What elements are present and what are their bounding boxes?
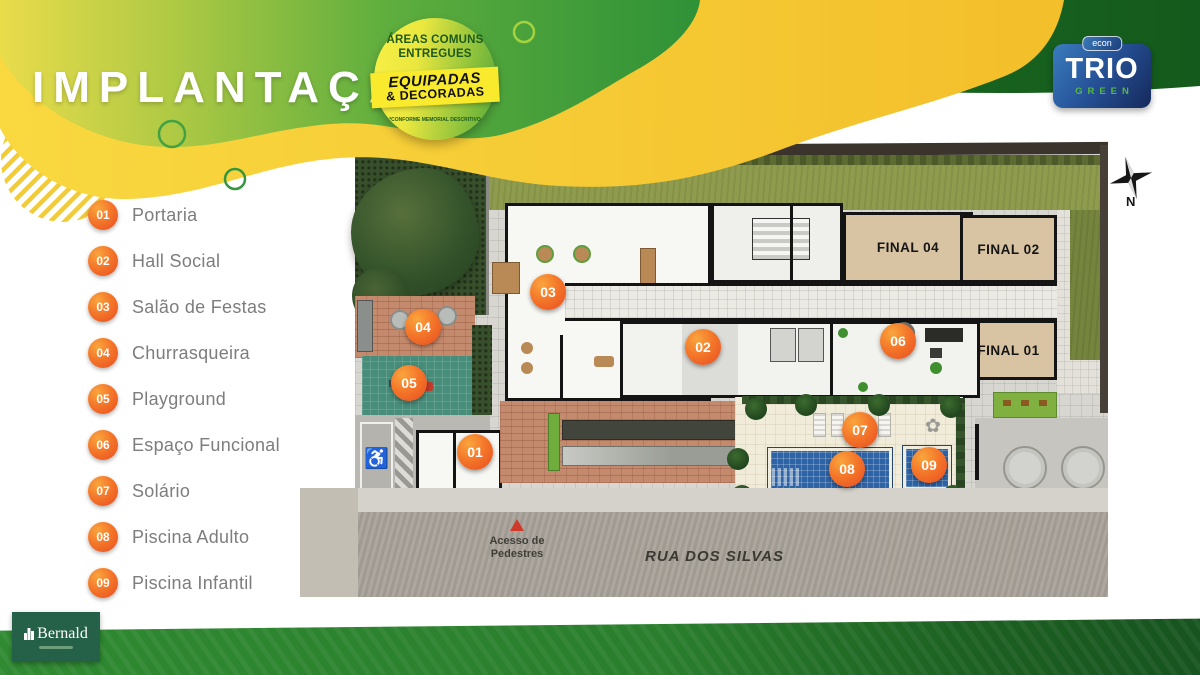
- espaco-wall: [830, 324, 833, 395]
- flower-dots: [1003, 400, 1011, 406]
- legend-number-badge: 03: [88, 292, 118, 322]
- legend-label: Portaria: [132, 205, 197, 226]
- sidewalk: [300, 488, 1108, 512]
- plan-marker-01: 01: [457, 434, 493, 470]
- bernald-tagline-bar: [39, 646, 73, 649]
- legend-number-badge: 06: [88, 430, 118, 460]
- utility-wall: [975, 424, 979, 480]
- hall-chair: [521, 362, 533, 374]
- hall-table: [573, 245, 591, 263]
- hall-inner-wall: [560, 335, 563, 398]
- pedestrian-access-label: Acesso de Pedestres: [477, 535, 557, 561]
- bernald-name: Bernald: [37, 625, 88, 643]
- trio-green-logo: econ TRIO GREEN: [1053, 44, 1151, 108]
- driveway-planter: [548, 413, 560, 471]
- portaria-inner-wall: [453, 433, 456, 489]
- legend-item-01: 01Portaria: [88, 200, 280, 230]
- badge-disclaimer: *CONFORME MEMORIAL DESCRITIVO: [374, 117, 496, 123]
- plan-marker-07: 07: [842, 412, 878, 448]
- legend-number-badge: 07: [88, 476, 118, 506]
- compass-north-label: N: [1126, 194, 1135, 209]
- espaco-appliance: [930, 348, 942, 358]
- legend-item-02: 02Hall Social: [88, 246, 280, 276]
- legend-label: Playground: [132, 389, 226, 410]
- deck-top-hedge: [742, 396, 960, 404]
- palm-tree: [795, 394, 817, 416]
- pool-steps: [772, 468, 800, 486]
- right-path-corner: [1056, 360, 1102, 394]
- handicap-space: ♿: [360, 422, 393, 494]
- legend-number-badge: 09: [88, 568, 118, 598]
- legend-label: Hall Social: [132, 251, 220, 272]
- plan-marker-05: 05: [391, 365, 427, 401]
- legend-item-06: 06Espaço Funcional: [88, 430, 280, 460]
- legend-number-badge: 05: [88, 384, 118, 414]
- plant: [838, 328, 848, 338]
- pedestrian-access-arrow: [510, 519, 524, 531]
- building-icon: [24, 628, 34, 640]
- bernald-logo: Bernald: [12, 612, 100, 662]
- water-tank: [1061, 446, 1105, 490]
- plan-marker-06: 06: [880, 323, 916, 359]
- hatched-strip: [395, 418, 413, 496]
- plan-marker-02: 02: [685, 329, 721, 365]
- legend-item-09: 09Piscina Infantil: [88, 568, 280, 598]
- brand-subname: GREEN: [1053, 86, 1151, 97]
- plan-marker-09: 09: [911, 447, 947, 483]
- hall-lounge: [594, 356, 614, 367]
- legend-label: Churrasqueira: [132, 343, 250, 364]
- brand-name: TRIO: [1053, 53, 1151, 86]
- legend-label: Piscina Adulto: [132, 527, 249, 548]
- delivered-areas-badge: ÁREAS COMUNS ENTREGUES EQUIPADAS & DECOR…: [374, 18, 496, 140]
- deck-flower-deco: ✿: [925, 415, 941, 438]
- elevator-car: [770, 328, 796, 362]
- slide: IMPLANTAÇÃO ÁREAS COMUNS ENTREGUES EQUIP…: [0, 0, 1200, 675]
- badge-yellow-band: EQUIPADAS & DECORADAS: [370, 67, 500, 109]
- legend: 01Portaria02Hall Social03Salão de Festas…: [88, 200, 280, 614]
- legend-item-07: 07Solário: [88, 476, 280, 506]
- bbq-counter: [357, 300, 373, 352]
- palm-tree: [745, 398, 767, 420]
- legend-label: Solário: [132, 481, 190, 502]
- plant: [858, 382, 868, 392]
- badge-line-1: ÁREAS COMUNS: [374, 33, 496, 47]
- unit-label: FINAL 01: [977, 343, 1039, 358]
- palm-tree: [727, 448, 749, 470]
- plan-marker-04: 04: [405, 309, 441, 345]
- badge-line-2: ENTREGUES: [374, 47, 496, 61]
- driveway: [500, 401, 745, 483]
- corridor: [565, 283, 1057, 321]
- legend-item-03: 03Salão de Festas: [88, 292, 280, 322]
- planting-strip: [472, 325, 492, 415]
- legend-item-08: 08Piscina Adulto: [88, 522, 280, 552]
- elevator-car: [798, 328, 824, 362]
- handicap-icon: ♿: [364, 446, 389, 471]
- plan-marker-03: 03: [530, 274, 566, 310]
- legend-label: Piscina Infantil: [132, 573, 253, 594]
- legend-item-05: 05Playground: [88, 384, 280, 414]
- espaco-counter: [925, 328, 963, 342]
- palm-tree: [868, 394, 890, 416]
- legend-number-badge: 02: [88, 246, 118, 276]
- ramp: [562, 446, 748, 466]
- street-left-wedge: [300, 488, 358, 597]
- hall-chair: [521, 342, 533, 354]
- footer-wave: [0, 615, 1200, 675]
- plan-marker-08: 08: [829, 451, 865, 487]
- ramp-cover: [562, 420, 742, 440]
- hall-counter: [492, 262, 520, 294]
- econ-logo: econ: [1082, 36, 1122, 51]
- street-name: RUA DOS SILVAS: [645, 548, 784, 565]
- hall-table: [536, 245, 554, 263]
- plant: [930, 362, 942, 374]
- legend-number-badge: 01: [88, 200, 118, 230]
- sun-lounger: [813, 413, 826, 437]
- sun-lounger: [878, 413, 891, 437]
- water-tank: [1003, 446, 1047, 490]
- legend-item-04: 04Churrasqueira: [88, 338, 280, 368]
- legend-number-badge: 08: [88, 522, 118, 552]
- palm-tree: [940, 396, 962, 418]
- legend-label: Espaço Funcional: [132, 435, 280, 456]
- legend-label: Salão de Festas: [132, 297, 267, 318]
- legend-number-badge: 04: [88, 338, 118, 368]
